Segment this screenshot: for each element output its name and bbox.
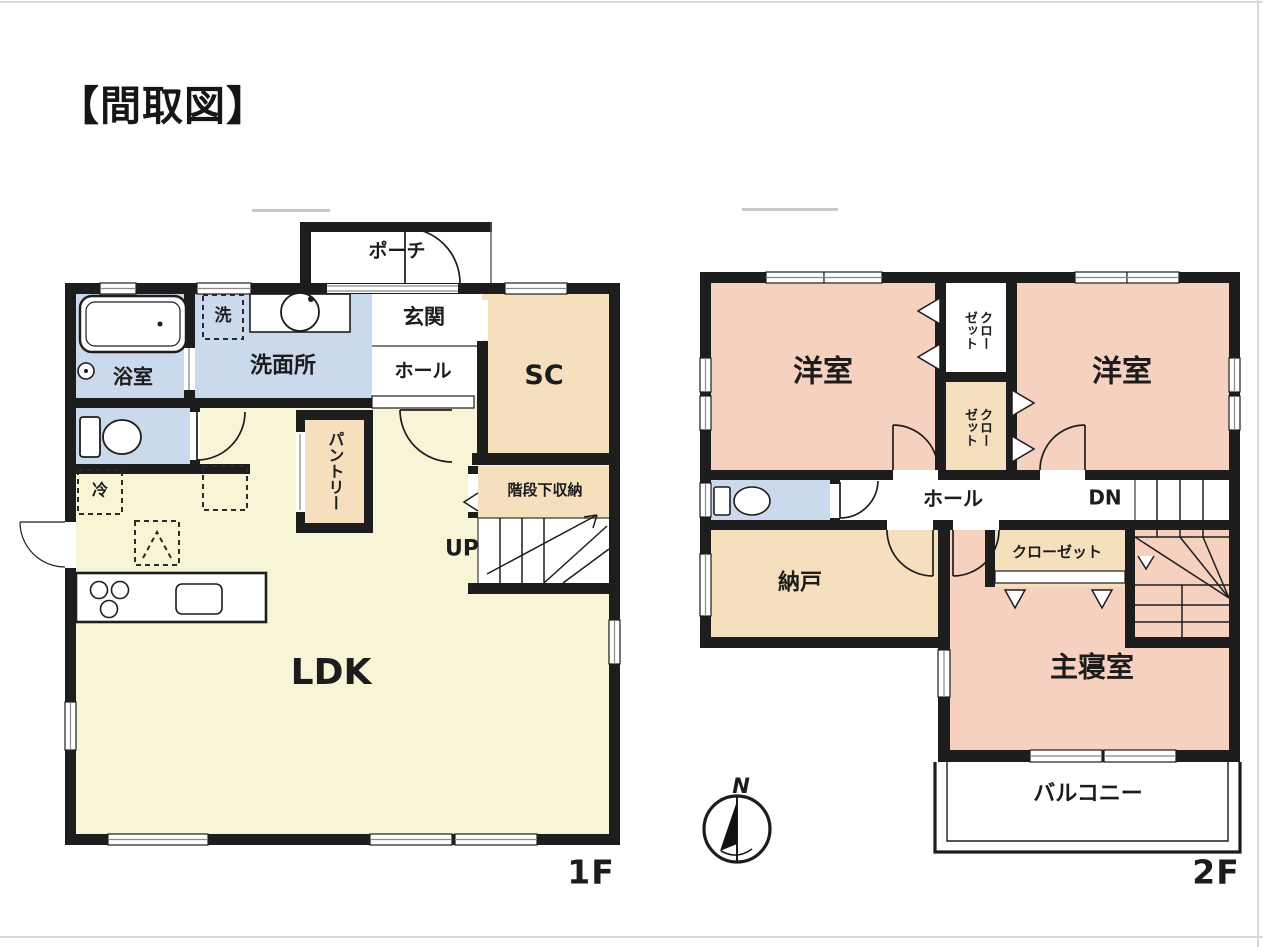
page-title: 【間取図】 (58, 72, 268, 132)
label-master-bedroom: 主寝室 (1050, 652, 1134, 681)
label-pantry: パントリー (326, 421, 343, 521)
label-closet-top: クローゼット (962, 306, 992, 354)
room-balcony (935, 762, 1240, 852)
label-hall-2f: ホール (923, 489, 983, 510)
toilet-1f-icon (80, 417, 100, 457)
label-bathroom: 浴室 (113, 367, 153, 388)
label-entrance: 玄関 (403, 306, 445, 328)
floor2-room-fills (710, 283, 1240, 852)
label-laundry: 洗 (215, 308, 232, 326)
compass-icon (704, 796, 770, 862)
label-ldk: LDK (291, 654, 372, 692)
label-floor1: 1F (567, 856, 615, 891)
label-compass-north: N (732, 775, 750, 797)
label-hall-1f: ホール (394, 362, 451, 382)
floorplan-canvas: 【間取図】 ポーチ 玄関 ホール SC 洗 洗面所 浴室 パントリー 階段下収納… (0, 0, 1263, 947)
label-stairs-down: DN (1088, 488, 1121, 509)
room-storage (711, 530, 938, 637)
kitchen-sink (176, 584, 222, 614)
label-stairs-up: UP (445, 537, 479, 560)
label-floor2: 2F (1192, 856, 1240, 891)
label-western-left: 洋室 (793, 356, 853, 388)
label-under-stairs: 階段下収納 (507, 483, 582, 499)
toilet-2f-icon (714, 487, 730, 515)
label-washroom: 洗面所 (250, 354, 316, 377)
label-balcony: バルコニー (1033, 782, 1143, 805)
label-shoe-closet: SC (524, 362, 563, 390)
label-western-right: 洋室 (1092, 356, 1152, 388)
label-porch: ポーチ (368, 242, 425, 262)
label-storage-room: 納戸 (778, 571, 822, 594)
label-closet-bottom: クローゼット (962, 403, 992, 451)
label-fridge: 冷 (92, 483, 108, 500)
stove-burner (91, 582, 108, 599)
label-closet-master: クローゼット (1012, 545, 1102, 561)
